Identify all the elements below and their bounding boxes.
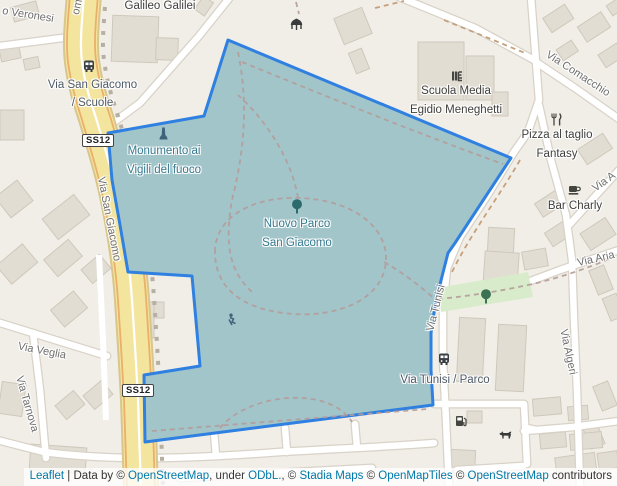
attribution-text: , © xyxy=(281,470,299,482)
openmaptiles-link[interactable]: OpenMapTiles xyxy=(378,470,452,482)
poi-bar-text: Bar Charly xyxy=(548,200,602,212)
bus-stop-label-parco: Via Tunisi / Parco xyxy=(375,371,515,389)
attribution-bar: Leaflet | Data by © OpenStreetMap, under… xyxy=(24,468,617,486)
leaflet-link[interactable]: Leaflet xyxy=(30,470,65,482)
attribution-text: , under xyxy=(209,470,248,482)
poi-label-scuola-media: Scuola Media Egidio Meneghetti xyxy=(386,82,526,120)
bus-stop1-line2: / Scuole xyxy=(30,94,155,112)
poi-park-line2: San Giacomo xyxy=(237,234,357,253)
attribution-text: © xyxy=(363,470,378,482)
attribution-text: contributors xyxy=(549,470,612,482)
poi-label-galileo: Galileo Galilei xyxy=(105,0,215,16)
attribution-text: © xyxy=(453,470,468,482)
openstreetmap-link[interactable]: OpenStreetMap xyxy=(468,470,549,482)
bus-stop-label-scuole: Via San Giacomo / Scuole xyxy=(30,76,155,112)
bus-stop1-line1: Via San Giacomo xyxy=(30,76,155,94)
poi-label-galileo-text: Galileo Galilei xyxy=(125,0,196,12)
bus-stop2-text: Via Tunisi / Parco xyxy=(400,374,489,386)
poi-label-pizza: Pizza al taglio Fantasy xyxy=(497,126,617,164)
poi-label-bar-charly: Bar Charly xyxy=(525,197,617,216)
poi-scuola-line2: Egidio Meneghetti xyxy=(386,101,526,120)
route-shield-ss12: SS12 xyxy=(122,384,154,397)
map-canvas[interactable]: o Veronesi omo Via San Giacomo Via Vegli… xyxy=(0,0,617,486)
attribution-text: | Data by © xyxy=(64,470,128,482)
poi-monumento-line2: Vigili del fuoco xyxy=(104,161,224,180)
poi-park-line1: Nuovo Parco xyxy=(237,215,357,234)
poi-monumento-line1: Monumento ai xyxy=(104,142,224,161)
odbl-link[interactable]: ODbL. xyxy=(248,470,281,482)
poi-pizza-line1: Pizza al taglio xyxy=(497,126,617,145)
poi-label-monumento: Monumento ai Vigili del fuoco xyxy=(104,142,224,179)
openstreetmap-link[interactable]: OpenStreetMap xyxy=(128,470,209,482)
poi-pizza-line2: Fantasy xyxy=(497,145,617,164)
poi-label-park-name: Nuovo Parco San Giacomo xyxy=(237,215,357,252)
poi-scuola-line1: Scuola Media xyxy=(386,82,526,101)
stadia-maps-link[interactable]: Stadia Maps xyxy=(299,470,363,482)
